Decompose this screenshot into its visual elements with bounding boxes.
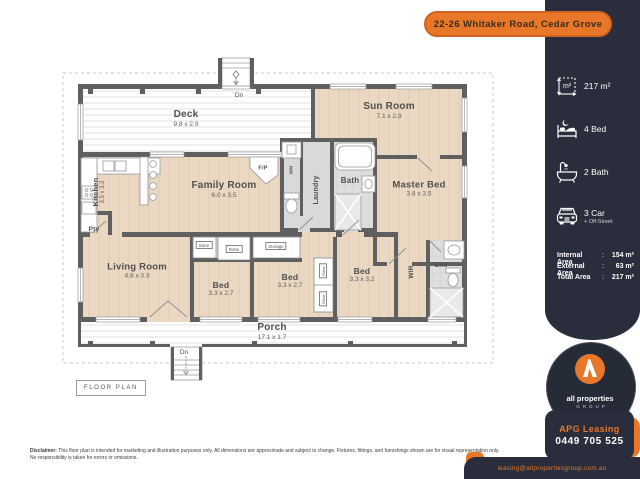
logo-group: GROUP — [576, 404, 608, 409]
agency-logo-mark — [0, 0, 640, 479]
address-banner: 22-26 Whitaker Road, Cedar Grove — [424, 11, 612, 37]
email-text: leasing@allpropertiesgroup.com.au — [497, 465, 606, 472]
floorplan-flyer: Deck9.8 x 2.9 Sun Room7.1 x 2.9 Kitchen3… — [0, 0, 640, 479]
email-bar: leasing@allpropertiesgroup.com.au — [464, 457, 640, 479]
logo-name: all properties — [566, 394, 613, 403]
contact-box: APG Leasing 0449 705 525 — [545, 410, 634, 460]
agency-phone: 0449 705 525 — [555, 436, 623, 447]
agency-name: APG Leasing — [559, 424, 619, 434]
